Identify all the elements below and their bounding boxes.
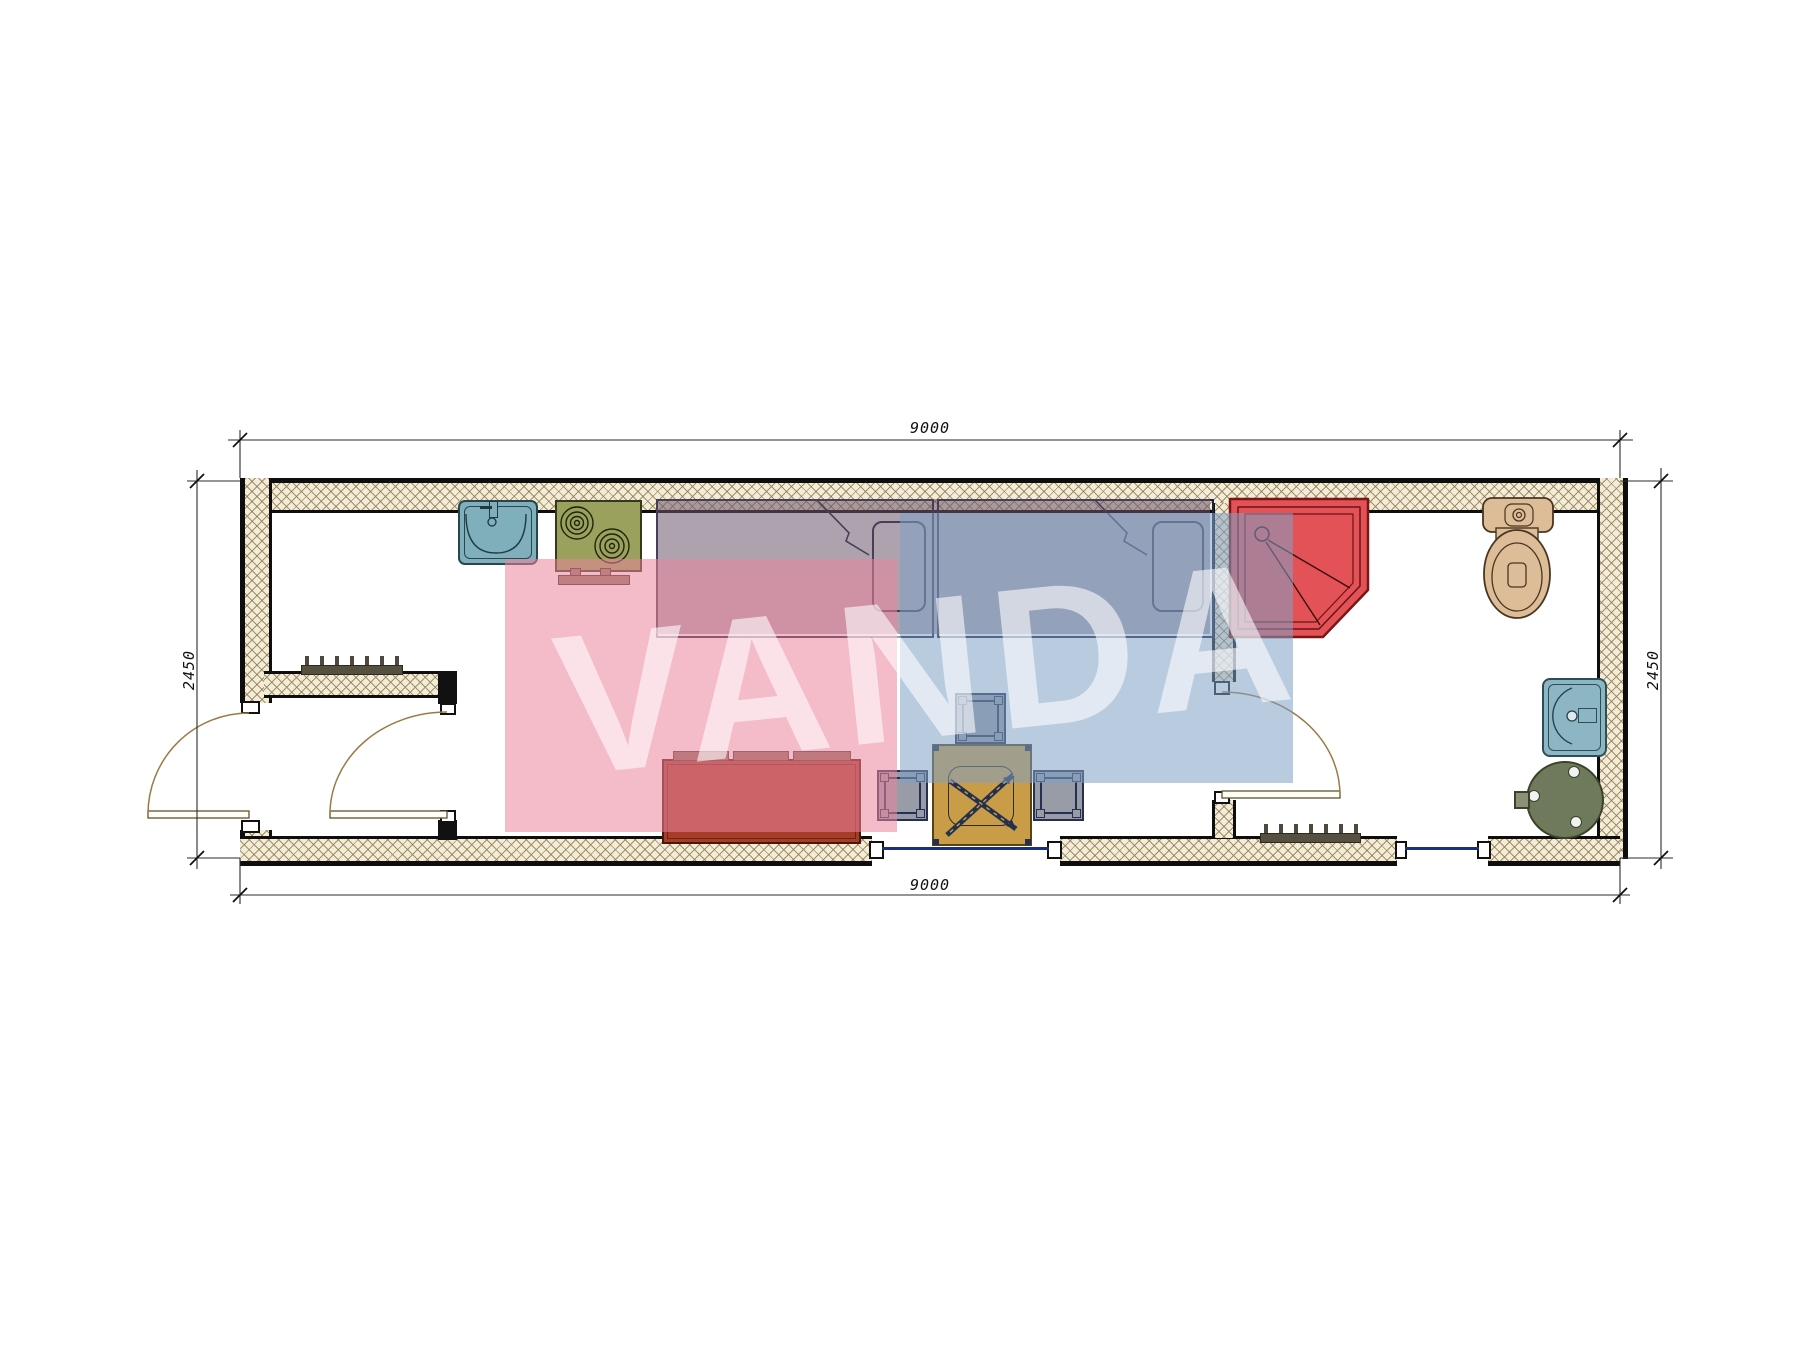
- floor-plan-canvas: VANDA 9000 9000 2450 2450: [0, 0, 1800, 1350]
- sink-drain-icon: [488, 518, 496, 526]
- entry-exterior-door: [148, 713, 249, 818]
- dim-height-right: 2450: [1644, 637, 1662, 703]
- dim-width-top: 9000: [897, 419, 963, 437]
- dim-height-left: 2450: [180, 637, 198, 703]
- fan-symbol-icon: [947, 775, 1016, 835]
- dim-width-bottom: 9000: [897, 876, 963, 894]
- toilet: [1483, 498, 1553, 618]
- burner-icon: [561, 507, 629, 563]
- entry-interior-door: [330, 712, 447, 818]
- basin-drain-icon: [1567, 711, 1577, 721]
